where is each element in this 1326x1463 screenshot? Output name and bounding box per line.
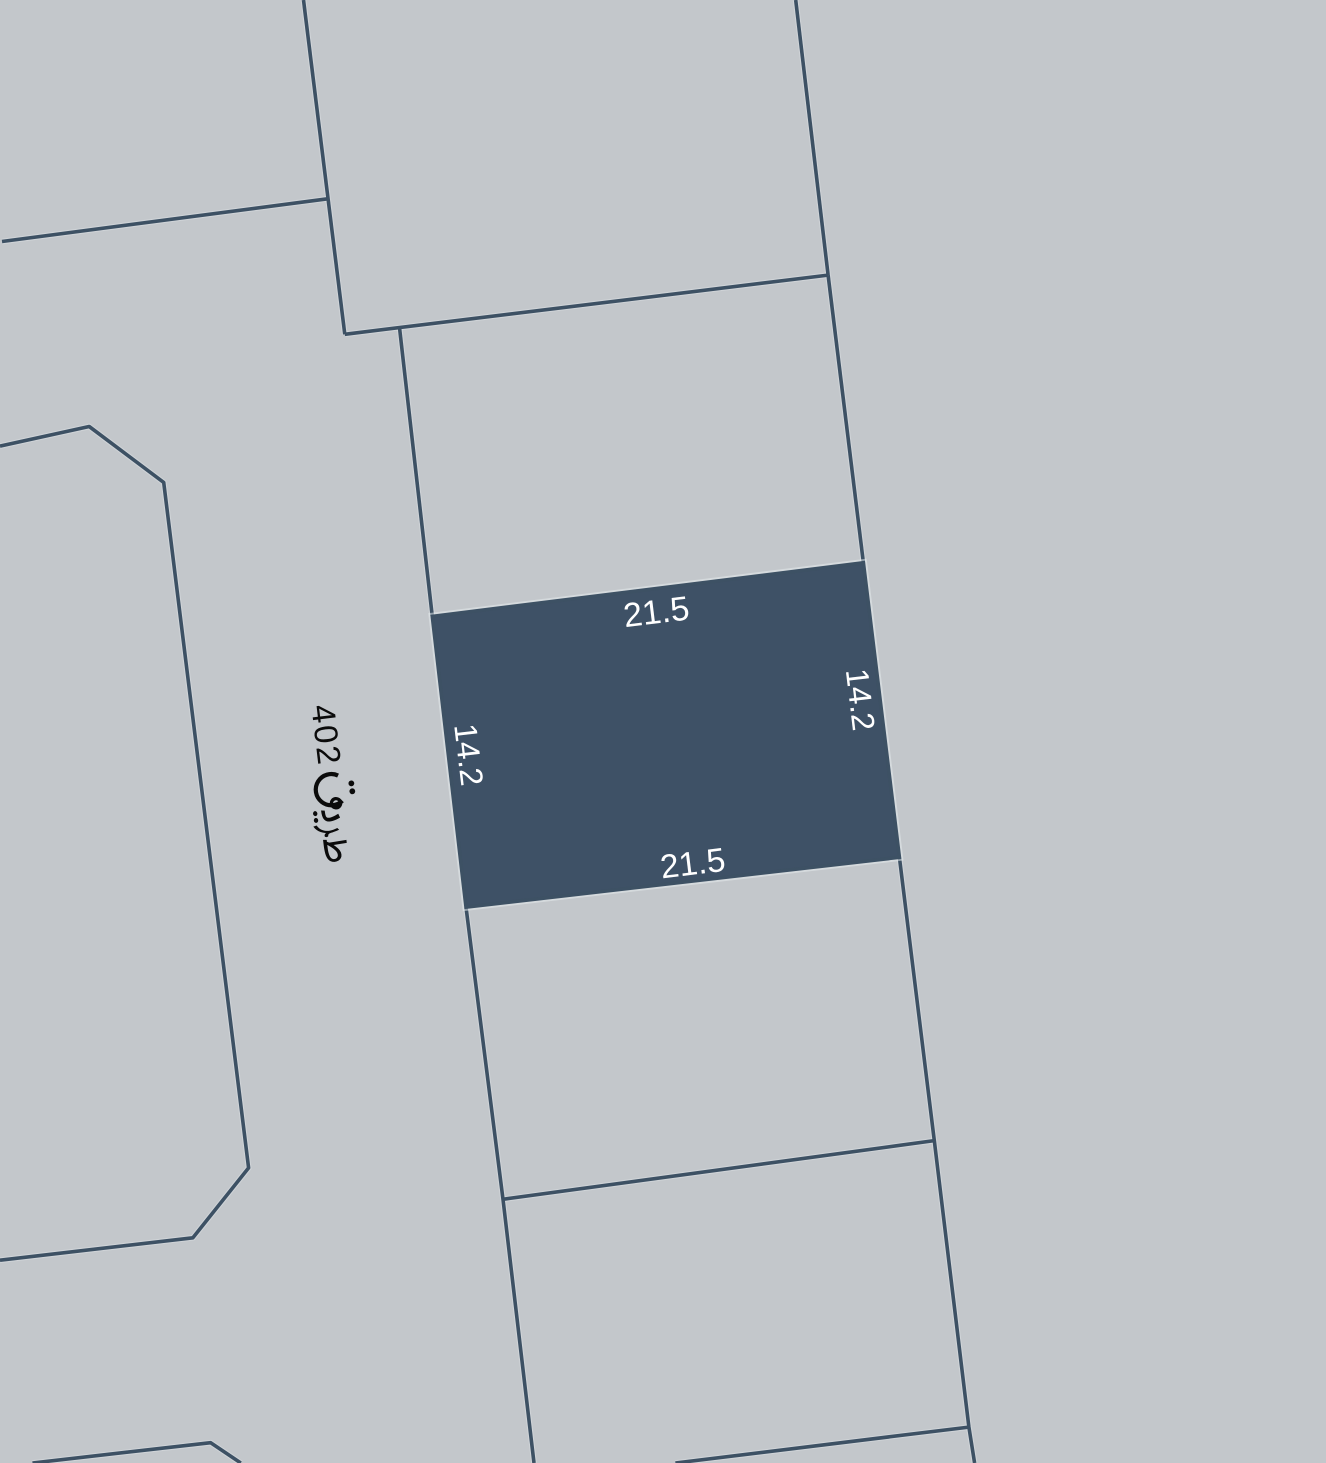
svg-text:14.2: 14.2	[447, 722, 490, 788]
svg-text:14.2: 14.2	[839, 667, 882, 733]
svg-text:21.5: 21.5	[658, 842, 727, 887]
svg-text:402: 402	[304, 702, 348, 768]
svg-text:21.5: 21.5	[621, 589, 691, 635]
